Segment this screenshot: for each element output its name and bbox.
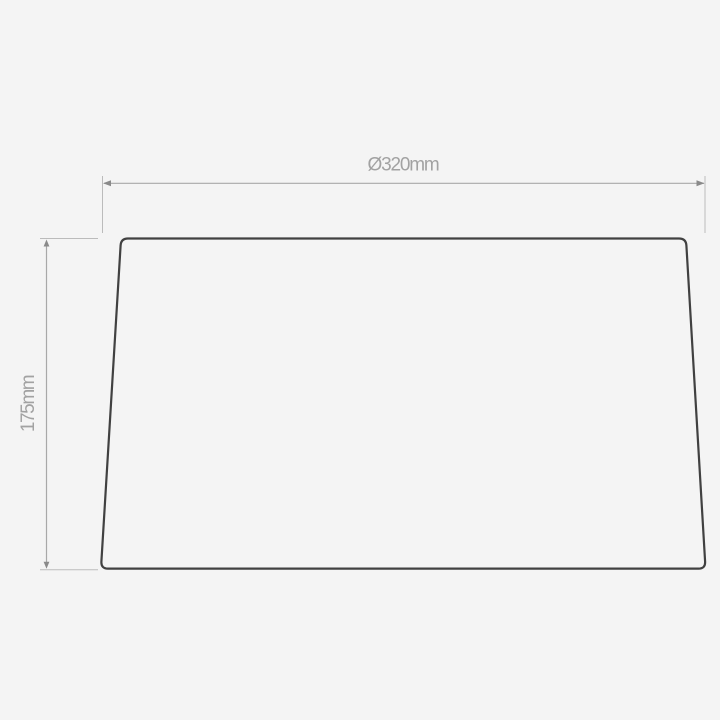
svg-text:Ø320mm: Ø320mm <box>368 155 439 176</box>
svg-text:175mm: 175mm <box>18 375 39 432</box>
